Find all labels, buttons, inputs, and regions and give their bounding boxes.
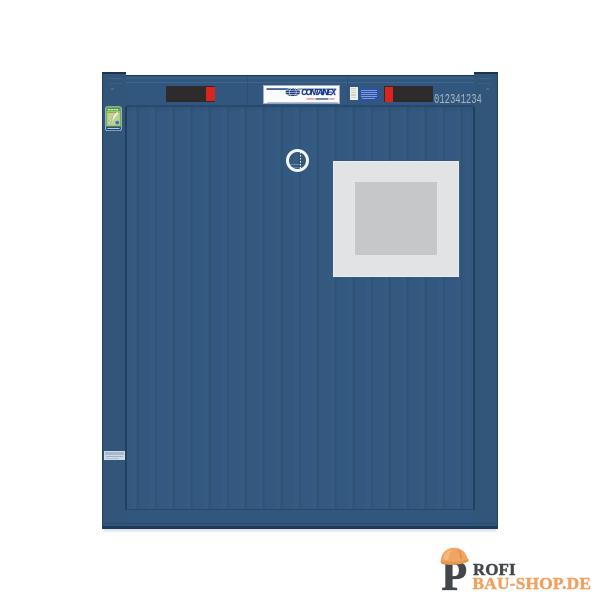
svg-text:CONTAINEX: CONTAINEX — [301, 88, 337, 97]
svg-text:012341234: 012341234 — [434, 92, 482, 108]
